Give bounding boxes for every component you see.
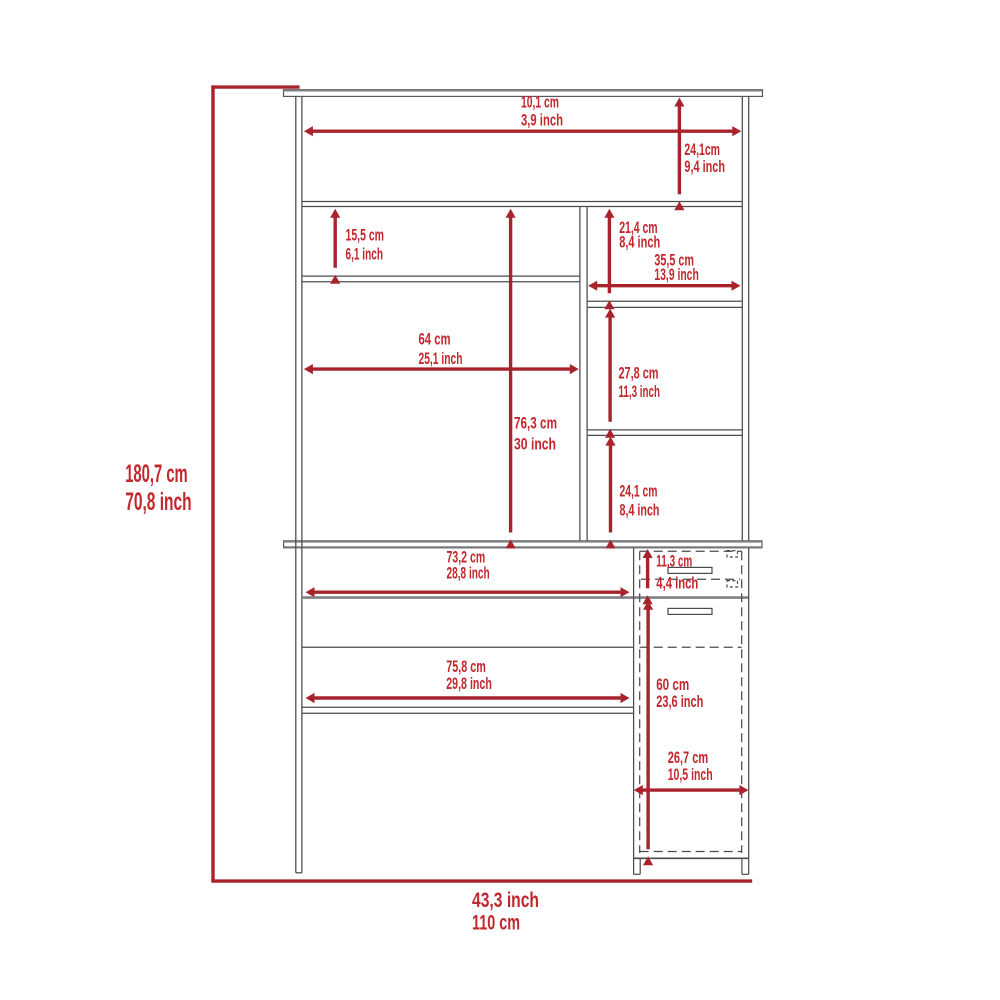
svg-text:9,4 inch: 9,4 inch: [684, 157, 725, 176]
svg-text:8,4 inch: 8,4 inch: [620, 501, 660, 520]
svg-text:43,3 inch: 43,3 inch: [472, 889, 539, 912]
svg-text:28,8 inch: 28,8 inch: [447, 564, 490, 583]
svg-text:25,1 inch: 25,1 inch: [419, 349, 463, 368]
svg-text:180,7 cm: 180,7 cm: [125, 460, 188, 488]
svg-text:11,3 inch: 11,3 inch: [619, 382, 661, 401]
svg-text:6,1 inch: 6,1 inch: [346, 245, 384, 264]
svg-text:11,3 cm: 11,3 cm: [656, 552, 692, 571]
svg-text:70,8 inch: 70,8 inch: [125, 488, 191, 516]
svg-text:23,6 inch: 23,6 inch: [656, 692, 703, 711]
svg-text:8,4 inch: 8,4 inch: [619, 233, 660, 252]
svg-text:30 inch: 30 inch: [514, 435, 556, 454]
svg-text:4,4 inch: 4,4 inch: [656, 574, 698, 593]
svg-text:64 cm: 64 cm: [419, 330, 451, 349]
svg-text:110 cm: 110 cm: [472, 912, 520, 935]
svg-text:10,1 cm: 10,1 cm: [521, 93, 559, 112]
svg-text:10,5 inch: 10,5 inch: [668, 765, 713, 784]
svg-text:29,8 inch: 29,8 inch: [446, 674, 492, 693]
svg-text:15,5 cm: 15,5 cm: [346, 226, 385, 245]
svg-text:3,9 inch: 3,9 inch: [521, 111, 563, 130]
svg-text:27,8 cm: 27,8 cm: [619, 364, 659, 383]
svg-text:76,3 cm: 76,3 cm: [514, 414, 557, 433]
svg-text:24,1 cm: 24,1 cm: [620, 482, 658, 501]
svg-text:13,9 inch: 13,9 inch: [654, 265, 698, 284]
